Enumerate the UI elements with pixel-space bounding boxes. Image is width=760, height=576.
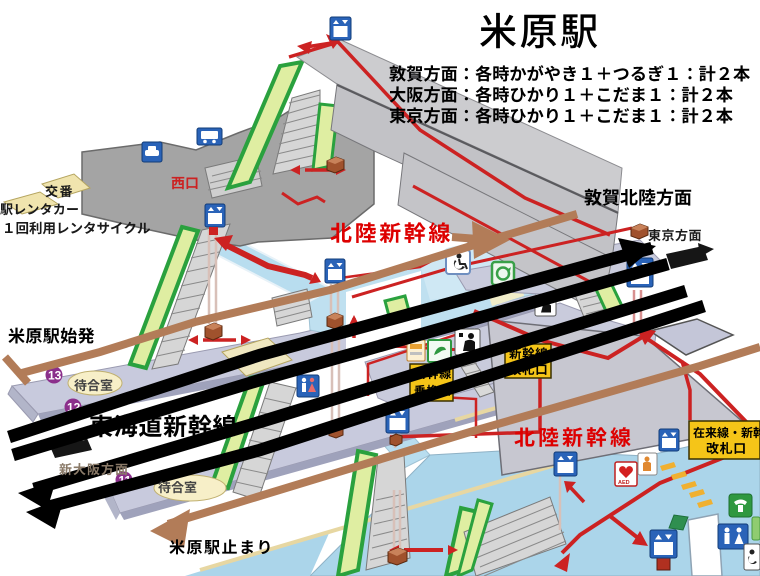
svg-text:13: 13 bbox=[48, 369, 62, 383]
svg-text:AED: AED bbox=[618, 480, 630, 486]
